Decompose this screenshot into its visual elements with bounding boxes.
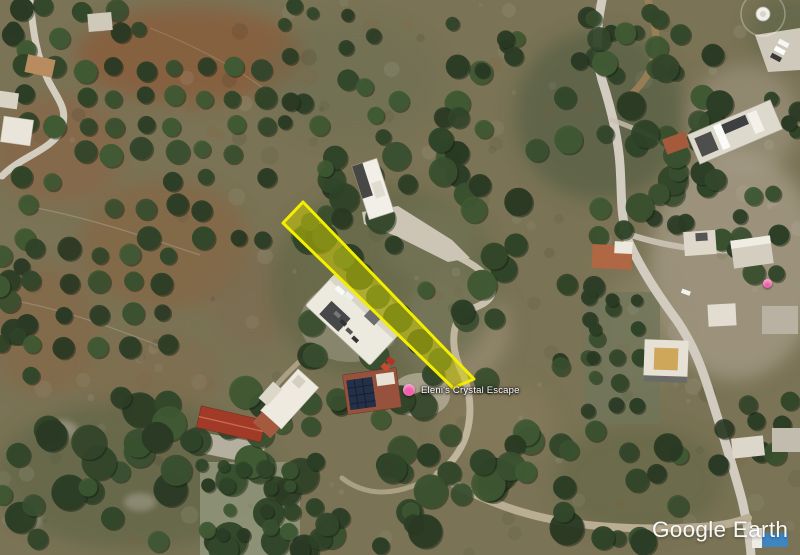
lodging-marker-icon[interactable] (403, 384, 415, 396)
secondary-place-marker-icon[interactable] (763, 279, 772, 288)
google-earth-viewport: Eleni's Crystal Escape Google Earth (0, 0, 800, 555)
google-earth-watermark: Google Earth (652, 517, 788, 543)
place-poi[interactable]: Eleni's Crystal Escape (403, 384, 520, 396)
satellite-imagery[interactable] (0, 0, 800, 555)
building-solar-roof (342, 367, 401, 414)
building-tan-roof (643, 339, 688, 383)
place-label: Eleni's Crystal Escape (421, 385, 520, 396)
